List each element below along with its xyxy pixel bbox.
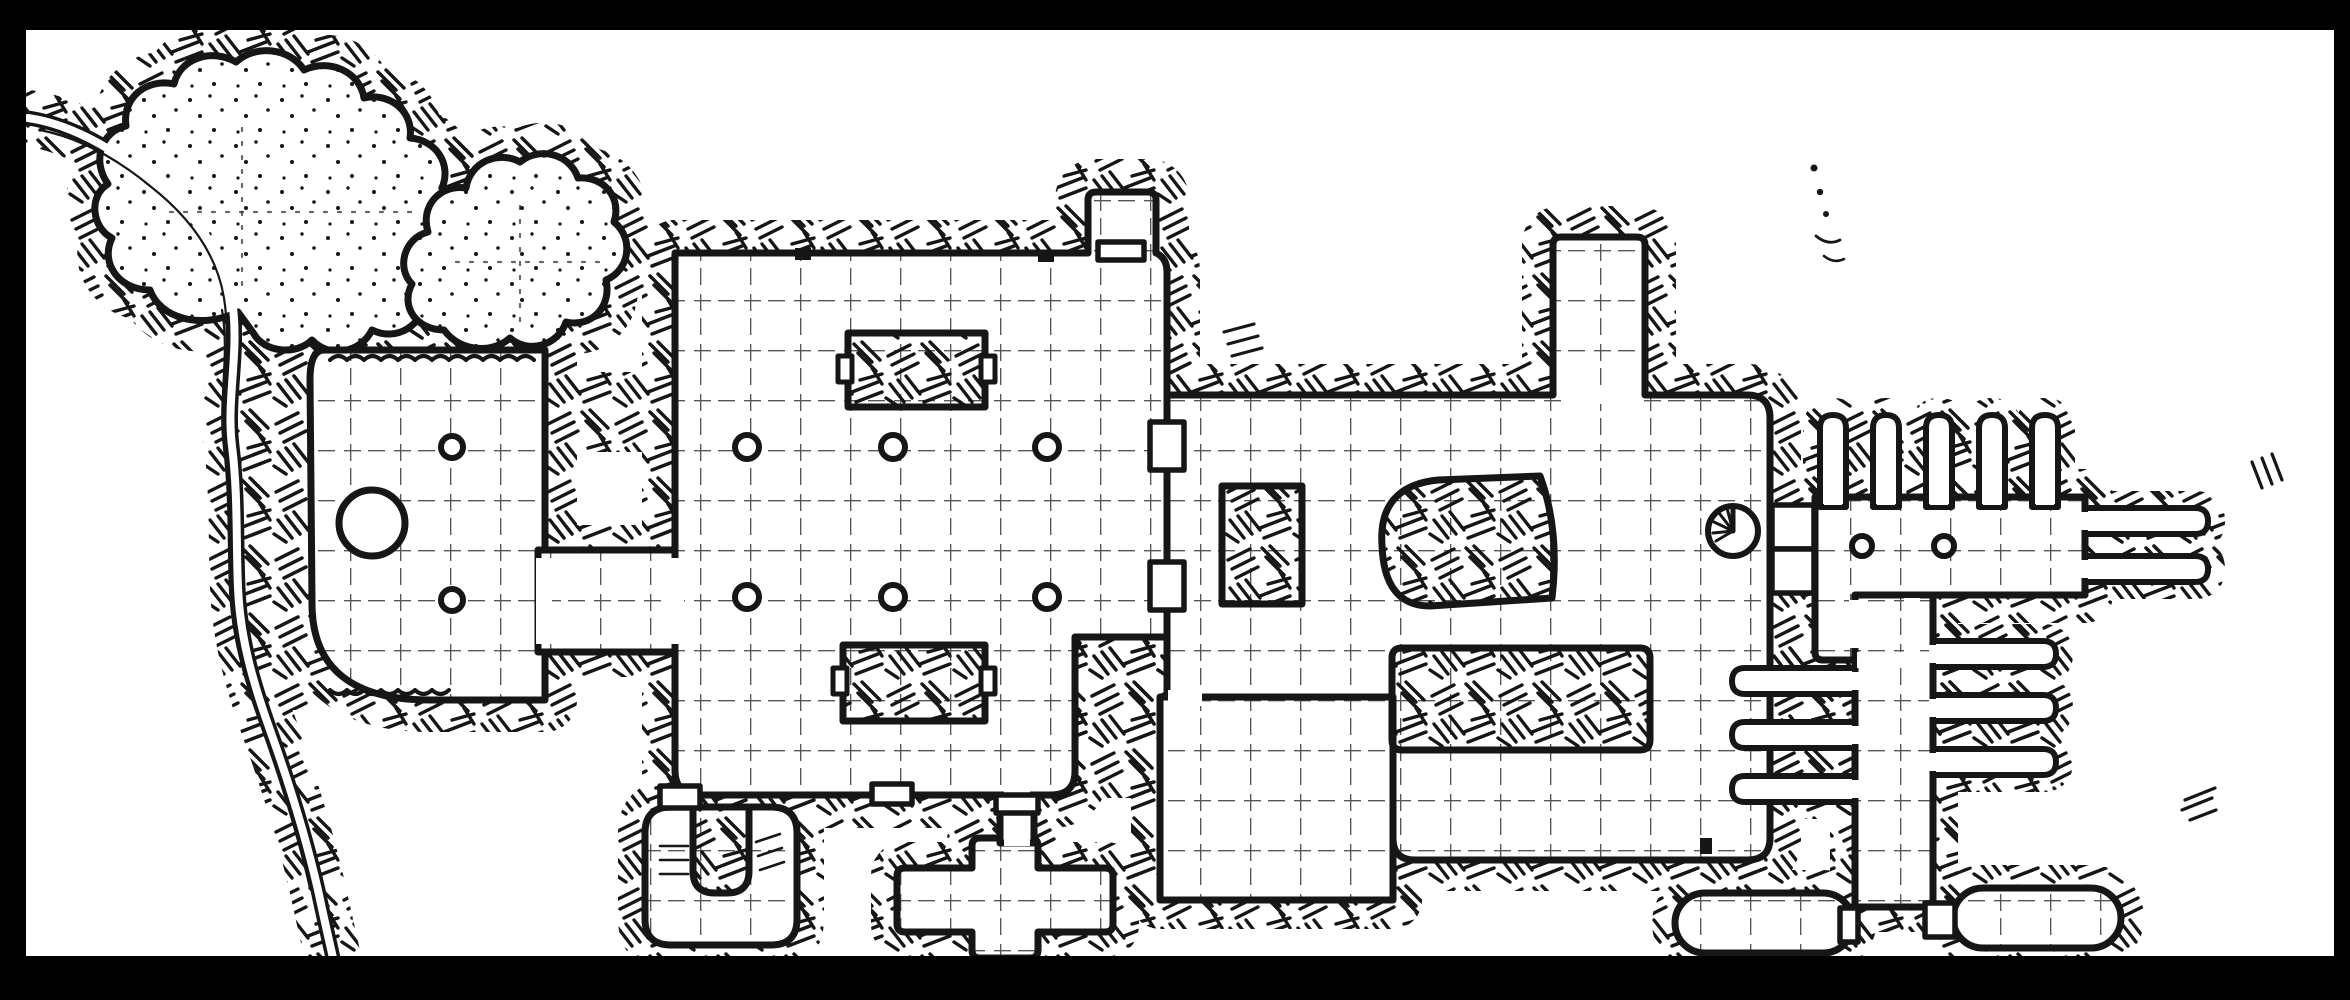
wall-jamb-3 bbox=[1700, 838, 1712, 854]
gap-niche-t5 bbox=[2036, 491, 2054, 505]
tomb-chamber-east bbox=[1953, 888, 2121, 948]
gap-niche-cr1 bbox=[1929, 645, 1943, 663]
gap-niche-r1 bbox=[2079, 512, 2093, 530]
burial-niche-cr-3 bbox=[1933, 749, 2056, 775]
rock-island-south bbox=[1392, 648, 1650, 750]
burial-niche-left-3 bbox=[1732, 776, 1855, 802]
door-hall-complex-n bbox=[1150, 422, 1184, 470]
well-pool bbox=[339, 490, 405, 556]
nub-block-north-w bbox=[838, 356, 852, 382]
door-stair-room bbox=[660, 786, 700, 808]
nook-rock bbox=[565, 372, 650, 452]
wall-jamb-1 bbox=[795, 248, 811, 260]
frame-top bbox=[0, 0, 2350, 30]
hall-corner-rock bbox=[1070, 632, 1170, 798]
drip-dot-3 bbox=[1823, 211, 1829, 217]
gap-niche-cr2 bbox=[1929, 699, 1943, 717]
gap-corridor-cross bbox=[1004, 833, 1030, 846]
nub-block-north-e bbox=[981, 356, 995, 382]
stair-core-block bbox=[693, 807, 749, 893]
burial-niche-cr-1 bbox=[1933, 641, 2056, 667]
gap-crypt-corridor-a bbox=[1857, 652, 1911, 668]
nub-block-south-w bbox=[833, 668, 847, 694]
tomb-chamber-west bbox=[1675, 893, 1853, 953]
burial-niche-right-2 bbox=[2085, 556, 2208, 582]
burial-niche-cr-2 bbox=[1933, 695, 2056, 721]
pillar-6 bbox=[1035, 585, 1059, 609]
gap-niche-cr3 bbox=[1929, 753, 1943, 771]
door-tomb-west bbox=[1840, 908, 1858, 942]
burial-niche-left-1 bbox=[1732, 668, 1855, 694]
square-room bbox=[1160, 697, 1393, 900]
door-tomb-east bbox=[1925, 903, 1955, 937]
door-hall-complex-s bbox=[1150, 562, 1184, 610]
gap-niche-l3 bbox=[1849, 780, 1863, 798]
drip-dot-1 bbox=[1811, 165, 1818, 172]
nub-block-south-e bbox=[981, 668, 995, 694]
gap-chamber-passage bbox=[536, 558, 552, 644]
gap-niche-t1 bbox=[1824, 491, 1842, 505]
dungeon-map bbox=[0, 0, 2350, 1000]
door-crypt-lower bbox=[1772, 549, 1814, 593]
gap-niche-t3 bbox=[1930, 491, 1948, 505]
gap-complex-stub bbox=[1561, 388, 1637, 404]
frame-bottom bbox=[0, 956, 2350, 1000]
burial-niche-left-2 bbox=[1732, 722, 1855, 748]
door-cross-corridor bbox=[996, 795, 1038, 813]
drip-dot-2 bbox=[1817, 189, 1823, 195]
rock-nook-block bbox=[1222, 486, 1302, 604]
pillar-4 bbox=[735, 585, 759, 609]
door-crypt-upper bbox=[1772, 505, 1814, 549]
pillar-1 bbox=[735, 435, 759, 459]
west-passage bbox=[538, 550, 688, 652]
gap-niche-t4 bbox=[1983, 491, 2001, 505]
gap-niche-t2 bbox=[1877, 491, 1895, 505]
rock-island-north bbox=[1382, 476, 1555, 606]
pillar-10 bbox=[1934, 536, 1954, 556]
dungeon-map-screenshot: Hand-drawn dungeon map, pen and ink styl… bbox=[0, 0, 2350, 1000]
pillar-5 bbox=[881, 585, 905, 609]
riverbank-rock bbox=[252, 340, 312, 710]
wall-jamb-2 bbox=[1038, 250, 1054, 262]
crypt-corridor bbox=[1855, 595, 1933, 907]
gap-square-room bbox=[1168, 690, 1202, 706]
gap-crypt-corridor-b bbox=[1904, 598, 1920, 658]
door-hall-south bbox=[872, 784, 912, 804]
pillar-9 bbox=[1852, 536, 1872, 556]
frame-right bbox=[2334, 0, 2350, 1000]
frame-left bbox=[0, 0, 26, 1000]
pillar-8 bbox=[441, 589, 463, 611]
gap-niche-r2 bbox=[2079, 560, 2093, 578]
pillar-2 bbox=[881, 435, 905, 459]
door-entry-porch bbox=[1098, 242, 1144, 260]
pillar-7 bbox=[441, 436, 463, 458]
gap-niche-l2 bbox=[1849, 726, 1863, 744]
gap-niche-l1 bbox=[1849, 672, 1863, 690]
burial-niche-right-1 bbox=[2085, 508, 2208, 534]
pillar-3 bbox=[1035, 435, 1059, 459]
gap-passage-hall bbox=[666, 558, 684, 644]
gap-crypt-corridor-c bbox=[1849, 600, 1861, 648]
pillar-block-south bbox=[843, 645, 985, 721]
pillar-block-north bbox=[848, 333, 985, 407]
